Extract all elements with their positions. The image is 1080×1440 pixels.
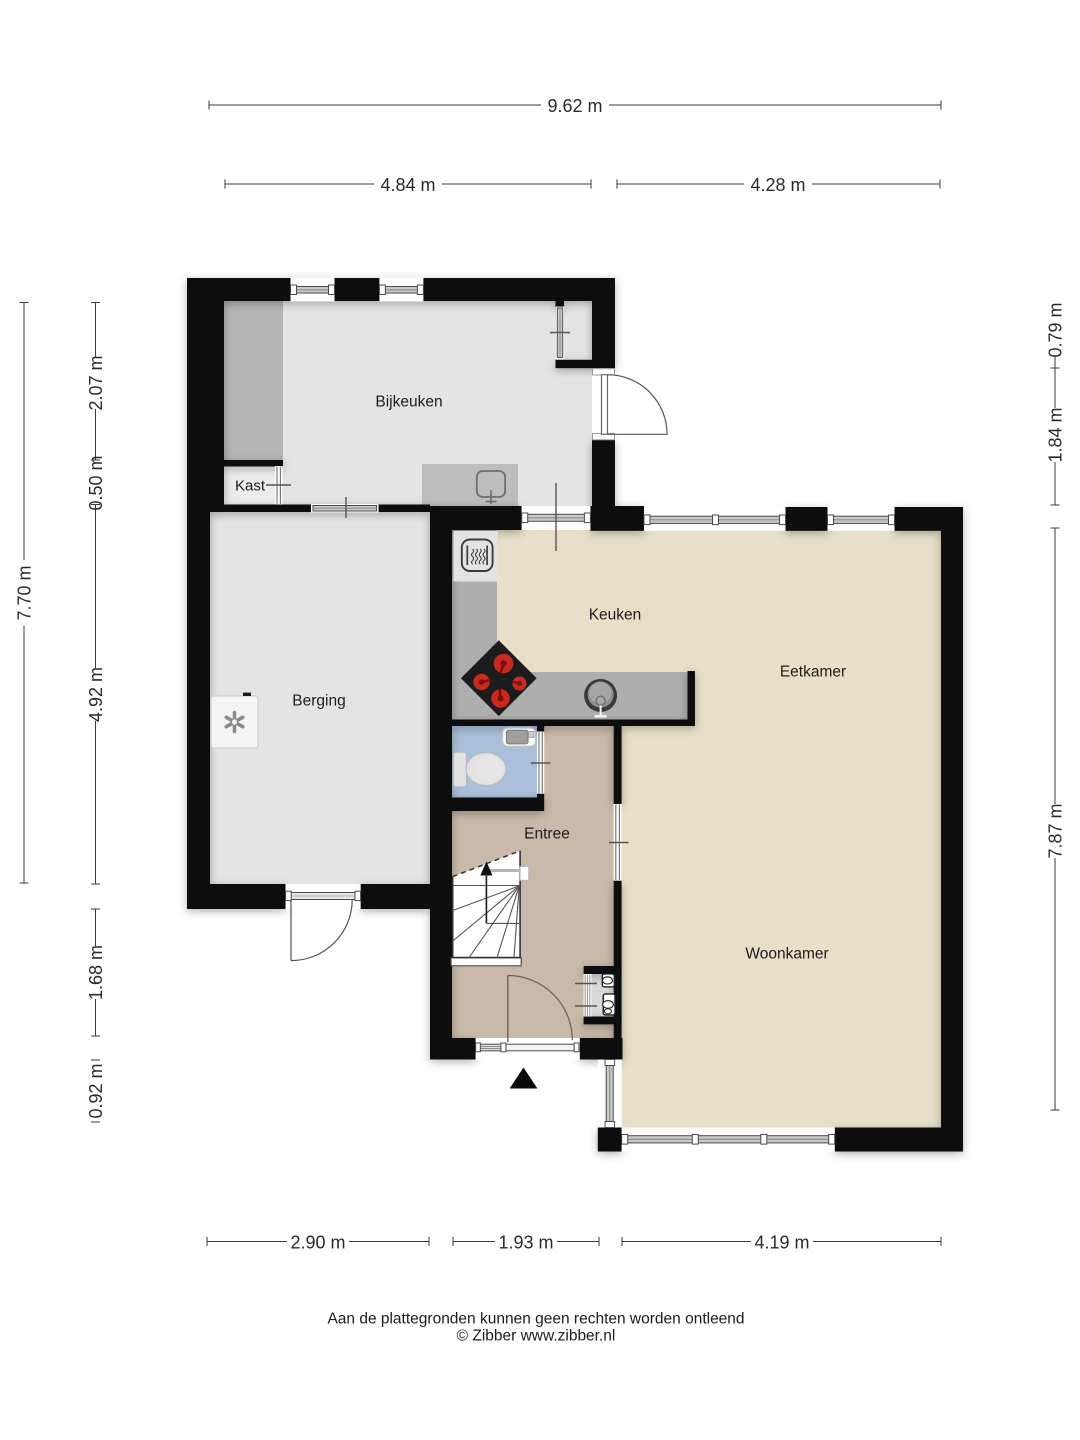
svg-text:© Zibber www.zibber.nl: © Zibber www.zibber.nl — [457, 1328, 616, 1345]
svg-text:Bijkeuken: Bijkeuken — [375, 394, 442, 411]
svg-text:Woonkamer: Woonkamer — [745, 946, 828, 963]
svg-text:Kast: Kast — [235, 478, 266, 495]
svg-text:0.50 m: 0.50 m — [86, 455, 106, 510]
svg-text:1.84 m: 1.84 m — [1046, 407, 1066, 462]
svg-text:1.68 m: 1.68 m — [86, 945, 106, 1000]
svg-text:Aan de plattegronden kunnen ge: Aan de plattegronden kunnen geen rechten… — [327, 1311, 744, 1328]
svg-text:0.92 m: 0.92 m — [86, 1063, 106, 1118]
svg-text:1.93 m: 1.93 m — [498, 1233, 553, 1253]
svg-text:Keuken: Keuken — [589, 607, 642, 624]
svg-text:Eetkamer: Eetkamer — [780, 664, 846, 681]
svg-text:4.92 m: 4.92 m — [86, 667, 106, 722]
svg-text:Entree: Entree — [524, 826, 570, 843]
svg-text:2.90 m: 2.90 m — [290, 1233, 345, 1253]
svg-text:9.62 m: 9.62 m — [547, 96, 602, 116]
svg-text:7.70 m: 7.70 m — [15, 565, 35, 620]
svg-text:4.28 m: 4.28 m — [750, 175, 805, 195]
svg-text:0.79 m: 0.79 m — [1046, 302, 1066, 357]
svg-text:Berging: Berging — [292, 693, 345, 710]
svg-text:2.07 m: 2.07 m — [86, 355, 106, 410]
svg-text:7.87 m: 7.87 m — [1046, 803, 1066, 858]
svg-text:4.19 m: 4.19 m — [754, 1233, 809, 1253]
svg-text:4.84 m: 4.84 m — [380, 175, 435, 195]
